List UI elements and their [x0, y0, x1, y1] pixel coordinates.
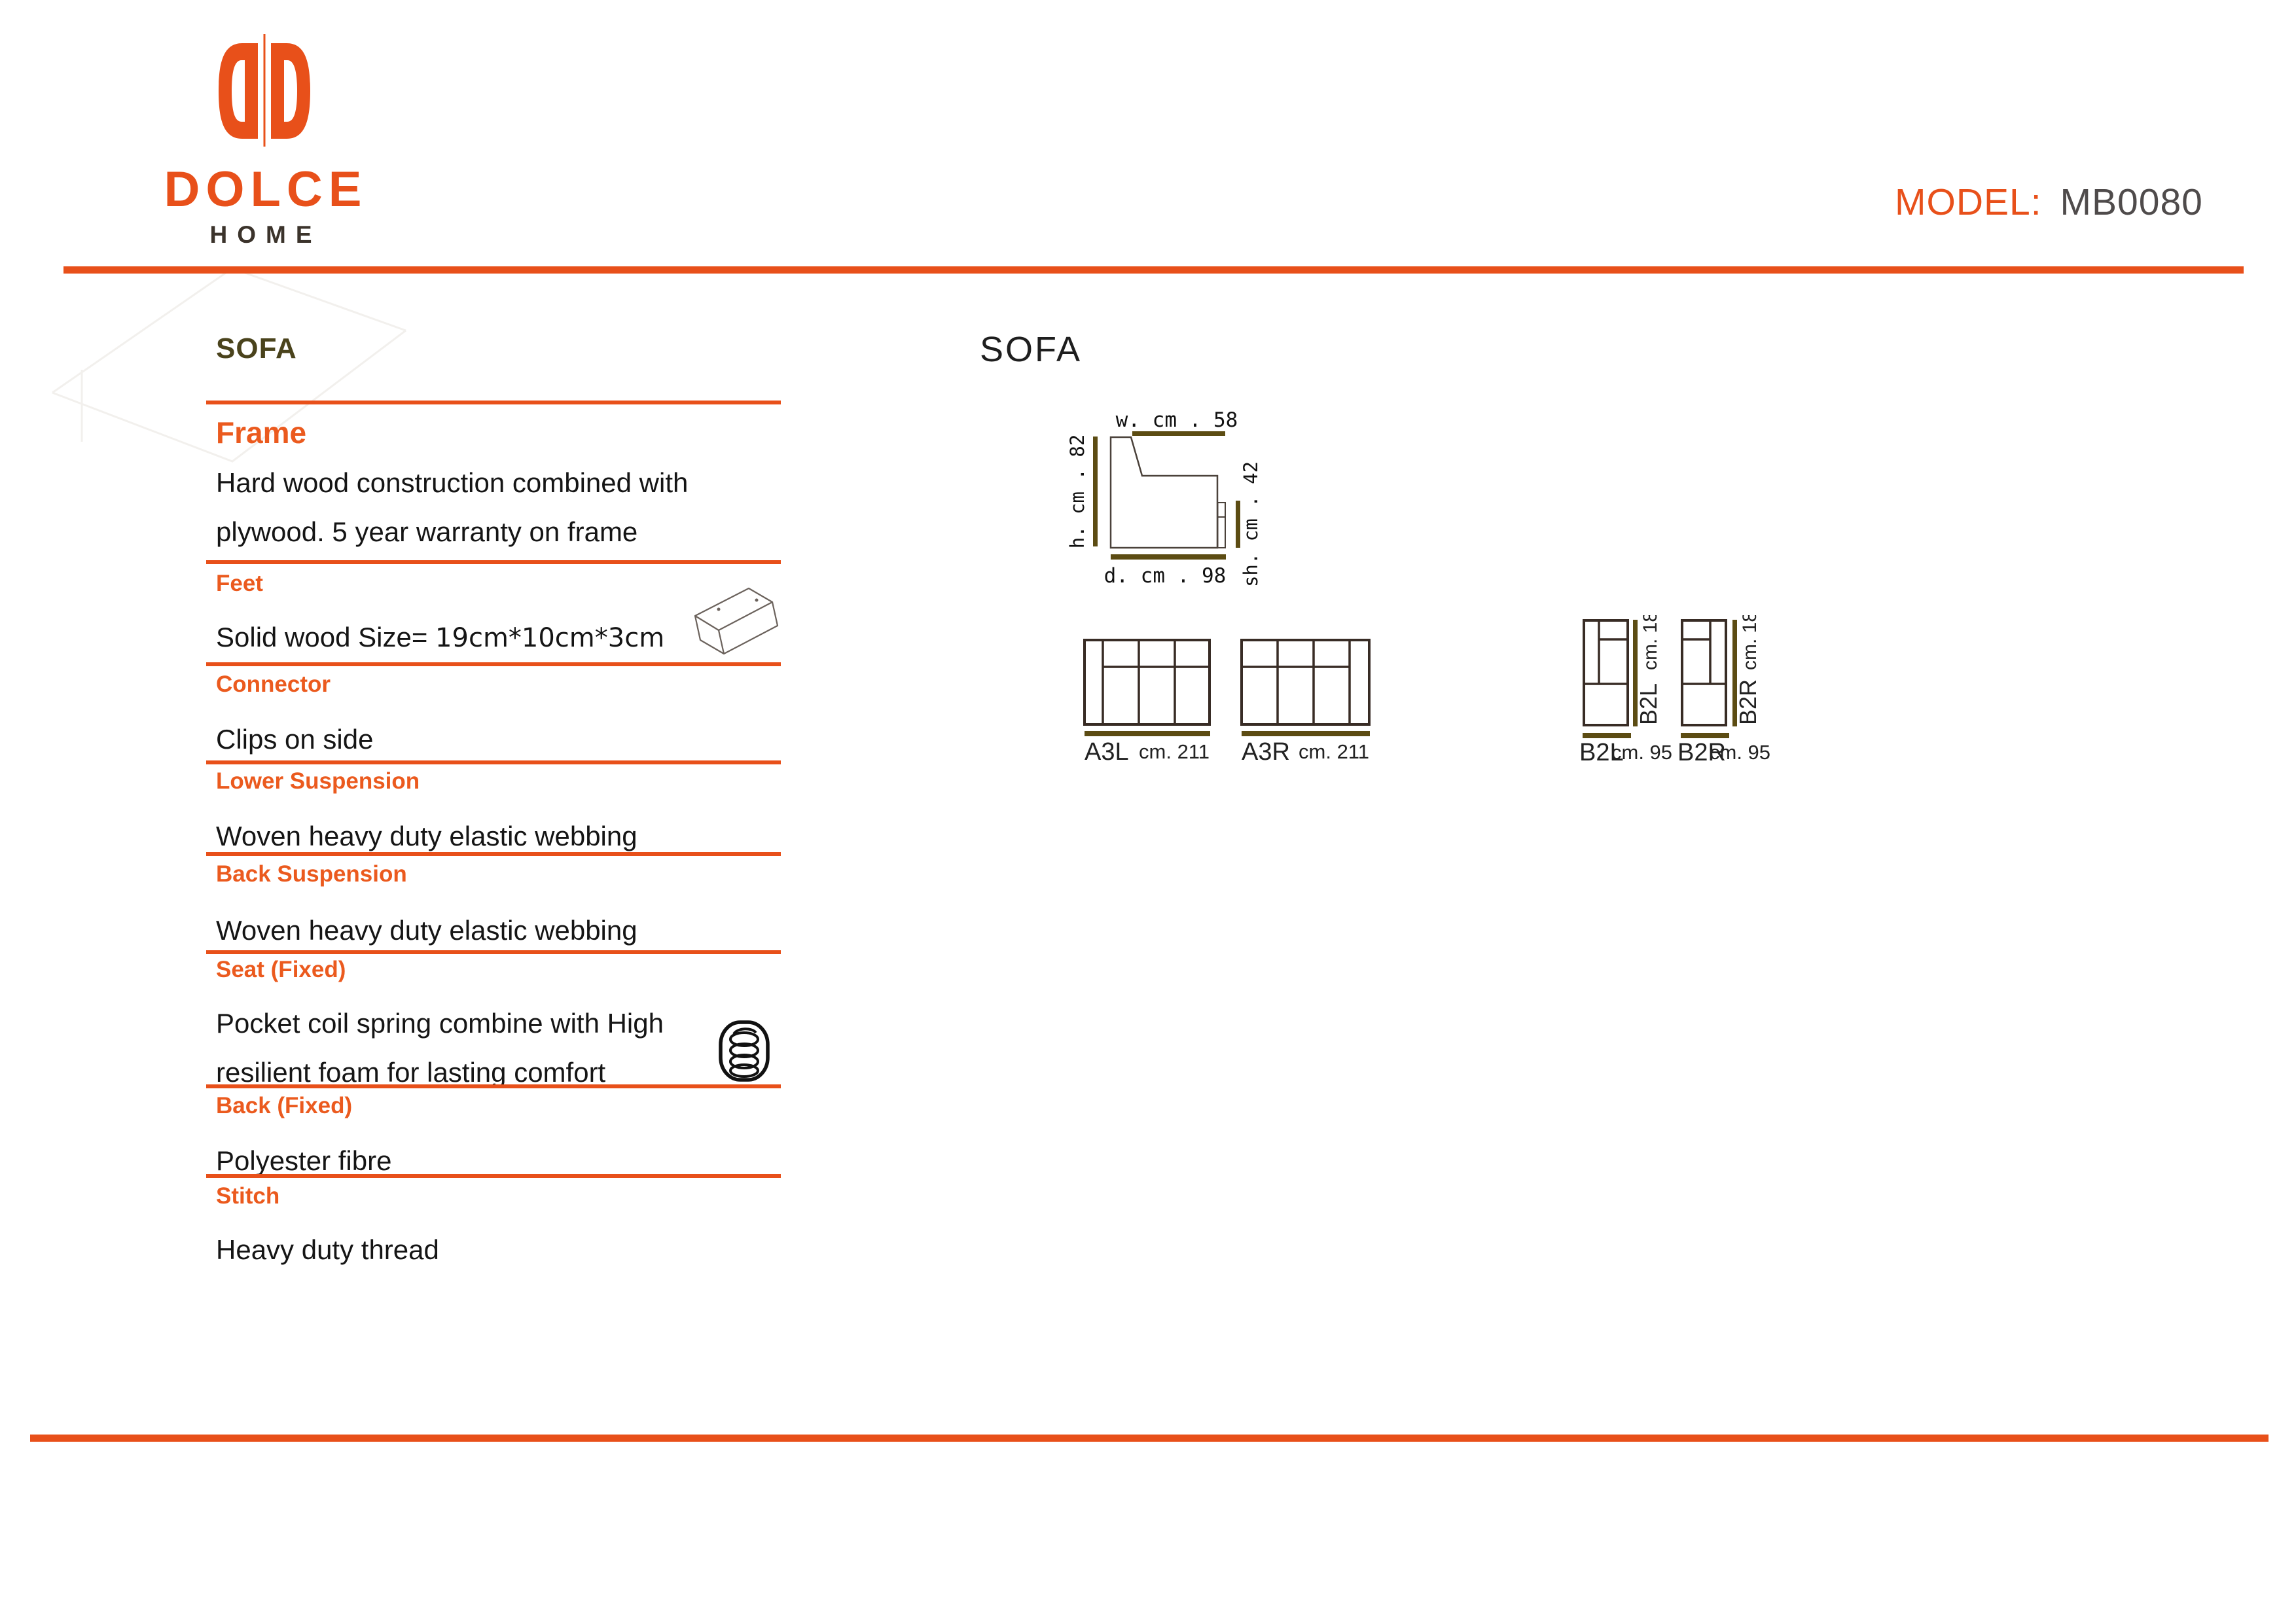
module-b2r-size: cm. 95: [1710, 741, 1770, 764]
frame-body-line1: Hard wood construction combined with: [216, 467, 688, 498]
module-a3l-diagram: A3L cm. 211: [1085, 640, 1210, 766]
seat-body-line2: resilient foam for lasting comfort: [216, 1057, 605, 1088]
module-b2l-depth: cm. 181: [1640, 615, 1661, 670]
diagram-title: SOFA: [980, 329, 1082, 370]
section-body-seat-fixed: Pocket coil spring combine with Highresi…: [216, 999, 726, 1097]
module-b2r-diagram: B2R cm. 181 B2R cm. 95: [1677, 615, 1770, 766]
module-b2r-depth: cm. 181: [1739, 615, 1761, 670]
section-divider: [206, 401, 781, 404]
section-heading-lower-suspension: Lower Suspension: [216, 768, 420, 794]
module-a3l-size: cm. 211: [1139, 740, 1210, 763]
section-heading-seat-fixed: Seat (Fixed): [216, 957, 346, 983]
section-body-feet: Solid wood Size= 19cm*10cm*3cm: [216, 613, 664, 663]
model-line: MODEL:MB0080: [1895, 181, 2203, 224]
sofa-side-view-diagram: w. cm . 58 h. cm . 82 sh. cm . 42 d. cm …: [1060, 393, 1342, 596]
section-heading-back-fixed: Back (Fixed): [216, 1093, 352, 1119]
section-divider: [206, 760, 781, 764]
height-dimension-label: h. cm . 82: [1066, 435, 1088, 549]
section-divider: [206, 1084, 781, 1088]
width-dimension-label: w. cm . 58: [1116, 408, 1238, 432]
section-divider: [206, 950, 781, 954]
section-divider: [206, 1174, 781, 1178]
section-body-connector: Clips on side: [216, 715, 373, 764]
section-divider: [206, 852, 781, 856]
section-heading-stitch: Stitch: [216, 1183, 279, 1209]
spec-column-title: SOFA: [216, 332, 297, 365]
section-heading-back-suspension: Back Suspension: [216, 861, 407, 887]
feet-body-prefix: Solid wood Size=: [216, 622, 427, 652]
module-a3l-code: A3L: [1085, 738, 1129, 766]
sofa-arm-panel: [1218, 503, 1226, 548]
model-value: MB0080: [2060, 181, 2203, 223]
section-heading-feet: Feet: [216, 571, 263, 597]
height-dimension-bar: [1093, 437, 1098, 546]
feet-size-value: 19cm*10cm*3cm: [435, 623, 664, 653]
module-b2l-code-rotated: B2L: [1635, 683, 1662, 725]
module-a3r-code: A3R: [1242, 738, 1290, 766]
seat-body-line1: Pocket coil spring combine with High: [216, 1008, 664, 1039]
section-divider: [206, 560, 781, 564]
footer-divider: [30, 1435, 2269, 1442]
module-b2l-size: cm. 95: [1611, 741, 1672, 764]
width-dimension-bar: [1132, 431, 1225, 436]
module-diagrams: A3L cm. 211 A3R cm. 211 B2L cm. 181: [1080, 615, 1774, 769]
depth-dimension-bar: [1111, 554, 1226, 560]
section-divider: [206, 662, 781, 666]
spec-sheet-page: DOLCE HOME MODEL:MB0080 SOFA Frame Hard …: [0, 0, 2296, 1623]
section-body-back-suspension: Woven heavy duty elastic webbing: [216, 906, 637, 955]
wood-block-icon: [681, 584, 798, 668]
coil-spring-icon: [718, 1020, 770, 1082]
frame-body-line2: plywood. 5 year warranty on frame: [216, 516, 637, 547]
seat-height-dimension-label: sh. cm . 42: [1240, 461, 1262, 587]
section-heading-connector: Connector: [216, 671, 331, 698]
section-body-stitch: Heavy duty thread: [216, 1225, 439, 1274]
module-a3r-diagram: A3R cm. 211: [1242, 640, 1370, 766]
module-b2l-diagram: B2L cm. 181 B2L cm. 95: [1579, 615, 1672, 766]
model-label: MODEL:: [1895, 181, 2042, 223]
spec-column: SOFA Frame Hard wood construction combin…: [206, 0, 781, 1623]
section-heading-frame: Frame: [216, 415, 306, 450]
section-body-frame: Hard wood construction combined withplyw…: [216, 458, 766, 556]
module-a3r-size: cm. 211: [1299, 740, 1369, 763]
depth-dimension-label: d. cm . 98: [1104, 564, 1227, 588]
module-b2r-code-rotated: B2R: [1734, 679, 1761, 725]
sofa-profile-outline: [1111, 437, 1217, 548]
